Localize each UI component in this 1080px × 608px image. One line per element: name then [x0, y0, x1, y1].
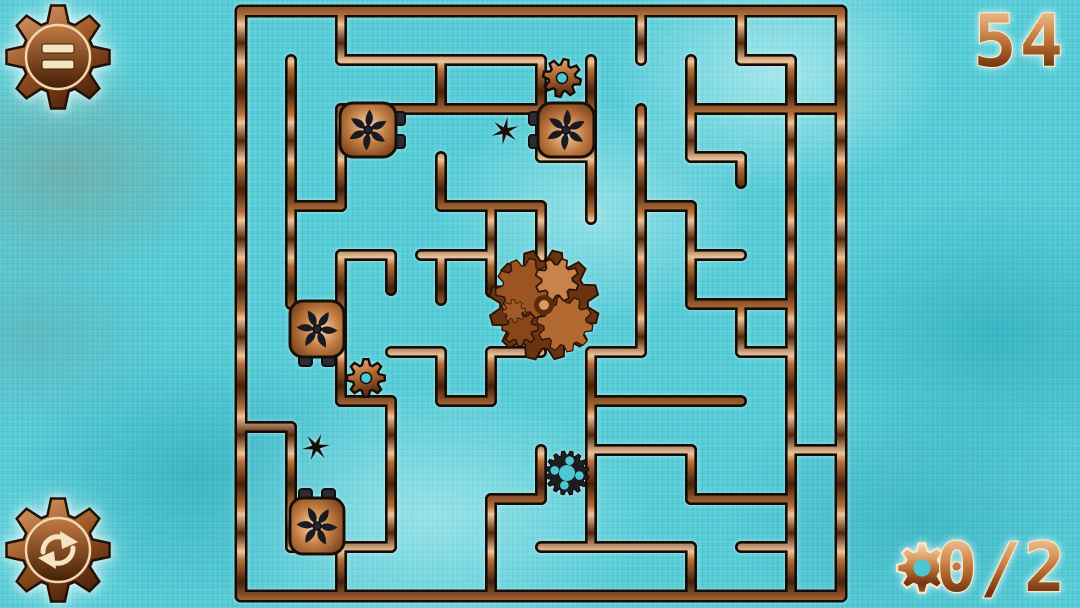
- button-ring: [26, 518, 90, 582]
- button-ring: [26, 25, 90, 89]
- fan-obstacle-2: [529, 103, 594, 157]
- spike-star-1: [489, 115, 520, 147]
- spike-star-2: [298, 429, 333, 465]
- timer-value: 54: [973, 2, 1066, 83]
- fan-obstacle-3: [290, 301, 344, 366]
- menu-button[interactable]: [0, 0, 117, 116]
- gear-counter-display: 0/2: [806, 512, 1076, 604]
- gear-counter-value: 0/2: [936, 529, 1068, 604]
- game-viewport: 54 0/2: [0, 0, 1080, 608]
- timer-display: 54: [864, 2, 1074, 90]
- fan-obstacle-1: [340, 103, 405, 157]
- gear-pickup-2: [347, 359, 385, 397]
- restart-button[interactable]: [0, 491, 117, 608]
- fan-obstacle-4: [290, 489, 344, 554]
